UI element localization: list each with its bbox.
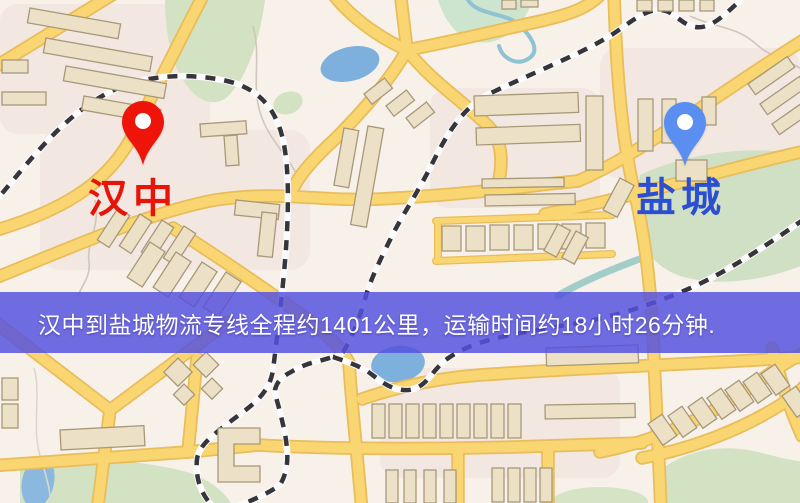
route-info-banner: 汉中到盐城物流专线全程约1401公里，运输时间约18小时26分钟. <box>0 292 800 353</box>
blue-location-pin-icon[interactable] <box>663 101 707 167</box>
destination-label: 盐城 <box>636 178 726 218</box>
blue-pin-body <box>664 102 706 166</box>
red-pin-body <box>122 101 164 165</box>
map-background[interactable] <box>0 0 800 503</box>
route-info-text: 汉中到盐城物流专线全程约1401公里，运输时间约18小时26分钟. <box>0 306 715 340</box>
blue-pin-hole <box>677 114 693 130</box>
origin-marker[interactable] <box>121 100 165 166</box>
map-screenshot: 汉中 盐城 汉中到盐城物流专线全程约1401公里，运输时间约18小时26分钟. <box>0 0 800 503</box>
red-location-pin-icon[interactable] <box>121 100 165 166</box>
origin-label: 汉中 <box>88 179 178 219</box>
destination-marker[interactable] <box>663 101 707 167</box>
red-pin-hole <box>135 113 151 129</box>
